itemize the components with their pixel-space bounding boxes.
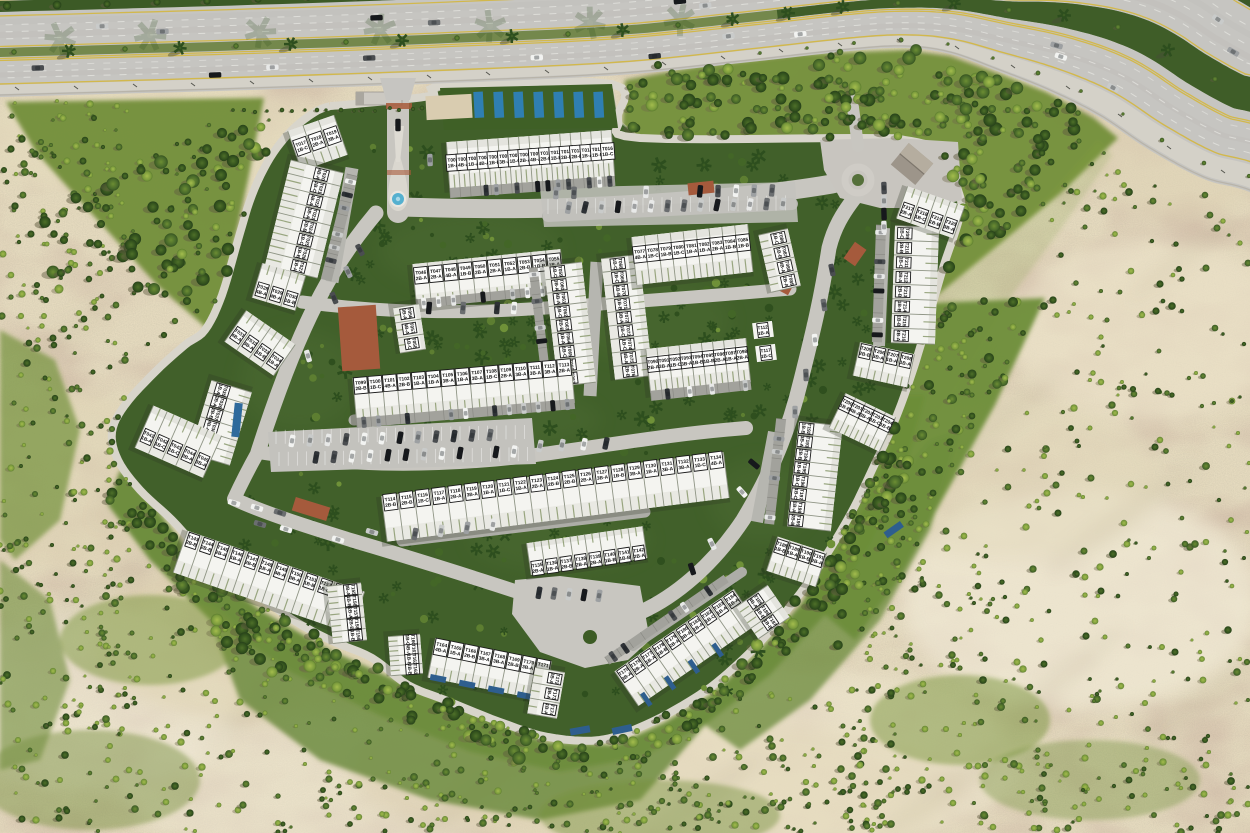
svg-text:2B-B: 2B-B: [406, 664, 413, 676]
svg-text:3B-A: 3B-A: [515, 371, 527, 378]
svg-text:1B-B: 1B-B: [896, 301, 902, 313]
svg-text:2B-B: 2B-B: [898, 242, 904, 254]
svg-text:T211: T211: [903, 257, 909, 268]
svg-text:3B-A: 3B-A: [471, 375, 483, 382]
svg-text:1B-C: 1B-C: [602, 151, 614, 158]
svg-text:4B-A: 4B-A: [445, 272, 457, 279]
svg-text:4B-A: 4B-A: [895, 330, 901, 342]
svg-text:2B-A: 2B-A: [475, 269, 487, 276]
svg-text:T216: T216: [900, 330, 906, 341]
svg-text:3B-A: 3B-A: [530, 370, 542, 377]
svg-text:1B-B: 1B-B: [460, 271, 472, 278]
svg-text:1B-C: 1B-C: [486, 374, 498, 381]
svg-text:2B-A: 2B-A: [346, 607, 353, 619]
svg-text:2B-A: 2B-A: [559, 367, 571, 374]
svg-text:1B-A: 1B-A: [504, 266, 516, 273]
svg-text:4B-A: 4B-A: [384, 383, 396, 390]
svg-text:2B-A: 2B-A: [430, 274, 442, 281]
svg-text:2B-B: 2B-B: [896, 286, 902, 298]
svg-text:1B-A: 1B-A: [428, 379, 440, 386]
svg-text:T213: T213: [902, 286, 908, 297]
svg-text:2B-B: 2B-B: [347, 618, 354, 630]
svg-text:2B-A: 2B-A: [501, 373, 513, 380]
svg-text:T215: T215: [901, 316, 907, 327]
svg-text:1B-C: 1B-C: [898, 228, 904, 240]
svg-text:3B-A: 3B-A: [544, 369, 556, 376]
svg-text:2B-B: 2B-B: [355, 385, 367, 392]
svg-text:T212: T212: [902, 272, 908, 283]
svg-text:2B-B: 2B-B: [399, 381, 411, 388]
svg-text:2B-A: 2B-A: [416, 275, 428, 282]
svg-text:1B-B: 1B-B: [895, 315, 901, 327]
svg-text:3B-A: 3B-A: [442, 378, 454, 385]
svg-text:T210: T210: [903, 242, 909, 253]
svg-text:T214: T214: [901, 301, 907, 312]
svg-text:1B-B: 1B-B: [348, 630, 355, 642]
svg-text:1B-A: 1B-A: [457, 376, 469, 383]
svg-text:1B-C: 1B-C: [897, 257, 903, 269]
svg-text:3B-A: 3B-A: [344, 584, 351, 596]
svg-text:2B-A: 2B-A: [489, 268, 501, 275]
svg-text:2B-A: 2B-A: [897, 271, 903, 283]
svg-text:1B-A: 1B-A: [413, 380, 425, 387]
svg-text:1B-B: 1B-B: [345, 596, 352, 608]
svg-text:1B-C: 1B-C: [370, 384, 382, 391]
svg-text:T209: T209: [904, 228, 910, 239]
